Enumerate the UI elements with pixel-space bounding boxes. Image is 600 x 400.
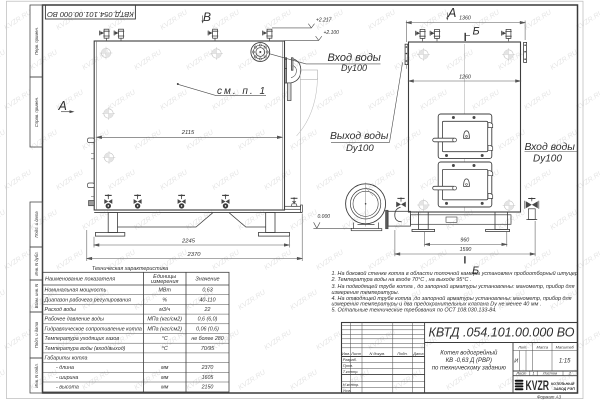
svg-text:2370: 2370 bbox=[187, 252, 202, 258]
svg-text:5. Остальные технические требо: 5. Остальные технические требования по О… bbox=[332, 308, 497, 314]
svg-text:KVZR.RU: KVZR.RU bbox=[55, 249, 85, 272]
svg-text:Подп. и дата: Подп. и дата bbox=[34, 321, 39, 348]
svg-text:KVZR.RU: KVZR.RU bbox=[289, 289, 319, 312]
svg-text:мм: мм bbox=[161, 365, 169, 371]
svg-text:KVZR.RU: KVZR.RU bbox=[159, 9, 189, 32]
svg-text:KVZR.RU: KVZR.RU bbox=[3, 169, 33, 192]
svg-text:1605: 1605 bbox=[202, 375, 214, 381]
svg-text:KVZR.RU: KVZR.RU bbox=[263, 169, 293, 192]
svg-text:КВ -0,63 Д (РВР): КВ -0,63 Д (РВР) bbox=[446, 358, 492, 364]
svg-text:Разраб.: Разраб. bbox=[343, 357, 357, 362]
svg-text:Листов: Листов bbox=[542, 371, 557, 376]
svg-text:Изм.: Изм. bbox=[342, 351, 350, 356]
svg-text:KVZR.RU: KVZR.RU bbox=[211, 169, 241, 192]
svg-text:0,06 (0,6): 0,06 (0,6) bbox=[196, 326, 219, 332]
svg-text:KVZR.RU: KVZR.RU bbox=[159, 89, 189, 112]
svg-text:N докум.: N докум. bbox=[370, 351, 386, 356]
svg-text:Н.контр.: Н.контр. bbox=[343, 382, 359, 387]
svg-text:Лист: Лист bbox=[515, 371, 527, 376]
svg-text:Б: Б bbox=[473, 26, 480, 38]
svg-text:KVZR.RU: KVZR.RU bbox=[237, 129, 267, 152]
svg-text:- высота: - высота bbox=[56, 385, 79, 391]
svg-text:МВт: МВт bbox=[159, 288, 172, 294]
svg-text:МПа (кгс/см2): МПа (кгс/см2) bbox=[147, 317, 182, 323]
svg-text:не более 280: не более 280 bbox=[191, 336, 223, 342]
svg-text:KVZR.RU: KVZR.RU bbox=[289, 369, 319, 392]
svg-text:Температура воды (вход/выход): Температура воды (вход/выход) bbox=[45, 346, 126, 352]
svg-text:Лист: Лист bbox=[350, 351, 362, 356]
svg-text:Dy100: Dy100 bbox=[533, 154, 562, 165]
svg-text:Лит.: Лит. bbox=[517, 344, 527, 349]
svg-text:KVZR.RU: KVZR.RU bbox=[237, 49, 267, 72]
svg-text:KVZR: KVZR bbox=[526, 378, 550, 393]
svg-text:KVZR.RU: KVZR.RU bbox=[263, 329, 293, 352]
svg-text:1:15: 1:15 bbox=[559, 358, 571, 364]
svg-text:Масштаб: Масштаб bbox=[556, 344, 575, 349]
svg-text:KVZR.RU: KVZR.RU bbox=[575, 169, 600, 192]
svg-text:ЗАВОД РЭП: ЗАВОД РЭП bbox=[554, 387, 576, 391]
svg-text:мм: мм bbox=[161, 375, 169, 381]
svg-text:1260: 1260 bbox=[459, 74, 471, 80]
svg-text:KVZR.RU: KVZR.RU bbox=[575, 9, 600, 32]
svg-text:KVZR.RU: KVZR.RU bbox=[367, 249, 397, 272]
svg-text:KVZR.RU: KVZR.RU bbox=[367, 329, 397, 352]
svg-text:Подп.: Подп. bbox=[397, 351, 407, 356]
svg-text:KVZR.RU: KVZR.RU bbox=[133, 129, 163, 152]
svg-text:KVZR.RU: KVZR.RU bbox=[523, 169, 553, 192]
svg-text:KVZR.RU: KVZR.RU bbox=[367, 89, 397, 112]
svg-text:А: А bbox=[447, 6, 456, 20]
svg-text:KVZR.RU: KVZR.RU bbox=[211, 249, 241, 272]
svg-text:м3/ч: м3/ч bbox=[159, 307, 170, 313]
svg-text:0,6 (6,0): 0,6 (6,0) bbox=[198, 317, 218, 323]
svg-text:1360: 1360 bbox=[459, 16, 471, 22]
svg-text:см. п. 1: см. п. 1 bbox=[217, 86, 267, 97]
svg-text:KVZR.RU: KVZR.RU bbox=[3, 249, 33, 272]
svg-text:1590: 1590 bbox=[460, 247, 472, 253]
svg-text:1. На боковой стенке котла в: 1. На боковой стенке котла в области топ… bbox=[332, 270, 578, 277]
svg-text:KVZR.RU: KVZR.RU bbox=[133, 49, 163, 72]
svg-text:70/95: 70/95 bbox=[201, 346, 214, 352]
svg-text:МПа (кгс/см2): МПа (кгс/см2) bbox=[147, 326, 182, 332]
svg-text:KVZR.RU: KVZR.RU bbox=[289, 129, 319, 152]
svg-text:Dy100: Dy100 bbox=[341, 63, 367, 73]
svg-text:KVZR.RU: KVZR.RU bbox=[497, 129, 527, 152]
svg-text:Масса: Масса bbox=[537, 344, 549, 349]
svg-text:KVZR.RU: KVZR.RU bbox=[263, 249, 293, 272]
svg-text:KVZR.RU: KVZR.RU bbox=[3, 9, 33, 32]
svg-text:0.000: 0.000 bbox=[318, 214, 331, 220]
svg-text:И: И bbox=[514, 358, 518, 364]
svg-text:Дата: Дата bbox=[412, 351, 424, 356]
svg-text:KVZR.RU: KVZR.RU bbox=[315, 169, 345, 192]
svg-text:KVZR.RU: KVZR.RU bbox=[3, 89, 33, 112]
svg-text:+2.217: +2.217 bbox=[316, 18, 332, 24]
svg-text:1: 1 bbox=[532, 371, 534, 376]
svg-text:°С: °С bbox=[162, 336, 168, 342]
svg-text:Т.контр.: Т.контр. bbox=[343, 369, 359, 374]
svg-text:KVZR.RU: KVZR.RU bbox=[3, 329, 33, 352]
svg-text:Перв. примен.: Перв. примен. bbox=[34, 27, 39, 55]
svg-text:В: В bbox=[203, 10, 211, 24]
svg-text:Рабочее давление воды: Рабочее давление воды bbox=[45, 317, 104, 323]
svg-text:Расход воды: Расход воды bbox=[45, 307, 76, 313]
svg-text:KVZR.RU: KVZR.RU bbox=[237, 369, 267, 392]
svg-text:%: % bbox=[162, 297, 167, 303]
svg-text:KVZR.RU: KVZR.RU bbox=[445, 49, 475, 72]
svg-text:KVZR.RU: KVZR.RU bbox=[81, 369, 111, 392]
svg-text:KVZR.RU: KVZR.RU bbox=[185, 49, 215, 72]
svg-text:измерения: измерения bbox=[151, 279, 179, 285]
svg-text:KVZR.RU: KVZR.RU bbox=[419, 89, 449, 112]
svg-text:KVZR.RU: KVZR.RU bbox=[419, 9, 449, 32]
svg-text:Выход воды: Выход воды bbox=[330, 131, 389, 142]
svg-text:Наименование показателя: Наименование показателя bbox=[45, 277, 115, 283]
svg-text:KVZR.RU: KVZR.RU bbox=[211, 9, 241, 32]
svg-text:KVZR.RU: KVZR.RU bbox=[445, 369, 475, 392]
svg-text:КВТД.054.101.00.000 ВО: КВТД.054.101.00.000 ВО bbox=[47, 10, 134, 19]
svg-text:Техническая характеристика: Техническая характеристика bbox=[92, 266, 168, 272]
svg-text:22: 22 bbox=[204, 307, 211, 313]
svg-text:Температура уходящих газов: Температура уходящих газов bbox=[45, 336, 120, 342]
svg-text:KVZR.RU: KVZR.RU bbox=[133, 369, 163, 392]
svg-text:KVZR.RU: KVZR.RU bbox=[393, 369, 423, 392]
svg-text:KVZR.RU: KVZR.RU bbox=[107, 89, 137, 112]
svg-text:KVZR.RU: KVZR.RU bbox=[419, 249, 449, 272]
svg-text:KVZR.RU: KVZR.RU bbox=[107, 169, 137, 192]
svg-text:KVZR.RU: KVZR.RU bbox=[575, 249, 600, 272]
svg-text:Габариты котла: Габариты котла bbox=[45, 356, 88, 362]
svg-text:KVZR.RU: KVZR.RU bbox=[315, 89, 345, 112]
svg-text:KVZR.RU: KVZR.RU bbox=[55, 169, 85, 192]
svg-text:2370: 2370 bbox=[201, 365, 214, 371]
svg-text:Утв.: Утв. bbox=[343, 388, 352, 393]
svg-text:КОТЕЛЬНЫЙ: КОТЕЛЬНЫЙ bbox=[551, 382, 575, 386]
svg-text:2115: 2115 bbox=[181, 130, 195, 136]
svg-text:KVZR.RU: KVZR.RU bbox=[367, 169, 397, 192]
svg-text:2245: 2245 bbox=[181, 238, 196, 244]
svg-text:Диапазон рабочего регулировани: Диапазон рабочего регулирования bbox=[44, 297, 132, 303]
svg-text:KVZR.RU: KVZR.RU bbox=[237, 289, 267, 312]
svg-text:Справ. примен.: Справ. примен. bbox=[34, 97, 39, 127]
svg-text:KVZR.RU: KVZR.RU bbox=[315, 249, 345, 272]
svg-text:Инв. N подл.: Инв. N подл. bbox=[34, 363, 39, 387]
svg-text:+2.100: +2.100 bbox=[324, 30, 340, 36]
svg-text:KVZR.RU: KVZR.RU bbox=[29, 129, 59, 152]
svg-text:по техническому заданию: по техническому заданию bbox=[432, 365, 507, 371]
svg-text:KVZR.RU: KVZR.RU bbox=[575, 329, 600, 352]
svg-text:KVZR.RU: KVZR.RU bbox=[367, 9, 397, 32]
svg-text:KVZR.RU: KVZR.RU bbox=[523, 89, 553, 112]
svg-text:- ширина: - ширина bbox=[56, 375, 78, 381]
svg-text:Взам. инв. N: Взам. инв. N bbox=[34, 283, 39, 308]
svg-text:2150: 2150 bbox=[201, 385, 214, 391]
svg-text:KVZR.RU: KVZR.RU bbox=[263, 9, 293, 32]
svg-text:KVZR.RU: KVZR.RU bbox=[523, 249, 553, 272]
svg-text:KVZR.RU: KVZR.RU bbox=[523, 9, 553, 32]
svg-text:Значение: Значение bbox=[195, 277, 219, 283]
svg-text:40-110: 40-110 bbox=[199, 297, 215, 303]
svg-text:Котел водогрейный: Котел водогрейный bbox=[440, 349, 498, 356]
svg-text:Инв. N дубл.: Инв. N дубл. bbox=[34, 251, 39, 275]
svg-text:Формат А3: Формат А3 bbox=[537, 394, 562, 399]
svg-text:Пров.: Пров. bbox=[343, 363, 353, 368]
svg-text:мм: мм bbox=[161, 385, 169, 391]
svg-text:КВТД .054.101.00.000 ВО: КВТД .054.101.00.000 ВО bbox=[429, 324, 575, 339]
svg-text:KVZR.RU: KVZR.RU bbox=[289, 49, 319, 72]
svg-text:2. Температура воды на входе: 2. Температура воды на входе 70°С , на в… bbox=[331, 277, 472, 283]
svg-text:KVZR.RU: KVZR.RU bbox=[549, 209, 579, 232]
svg-text:0,63: 0,63 bbox=[202, 288, 212, 294]
svg-text:- длина: - длина bbox=[56, 365, 74, 371]
svg-text:960: 960 bbox=[460, 238, 469, 244]
svg-text:А: А bbox=[58, 99, 67, 113]
svg-text:Подп. и дата: Подп. и дата bbox=[34, 211, 39, 238]
svg-text:°С: °С bbox=[162, 346, 168, 352]
svg-text:KVZR.RU: KVZR.RU bbox=[159, 169, 189, 192]
svg-text:Гидравлическое сопротивление к: Гидравлическое сопротивление котла bbox=[45, 326, 142, 332]
svg-text:KVZR.RU: KVZR.RU bbox=[575, 89, 600, 112]
svg-text:KVZR.RU: KVZR.RU bbox=[549, 49, 579, 72]
svg-text:KVZR.RU: KVZR.RU bbox=[471, 89, 501, 112]
svg-text:Dy100: Dy100 bbox=[346, 143, 374, 154]
svg-text:Номинальная мощность: Номинальная мощность bbox=[45, 288, 107, 294]
svg-text:Вход воды: Вход воды bbox=[328, 52, 381, 64]
